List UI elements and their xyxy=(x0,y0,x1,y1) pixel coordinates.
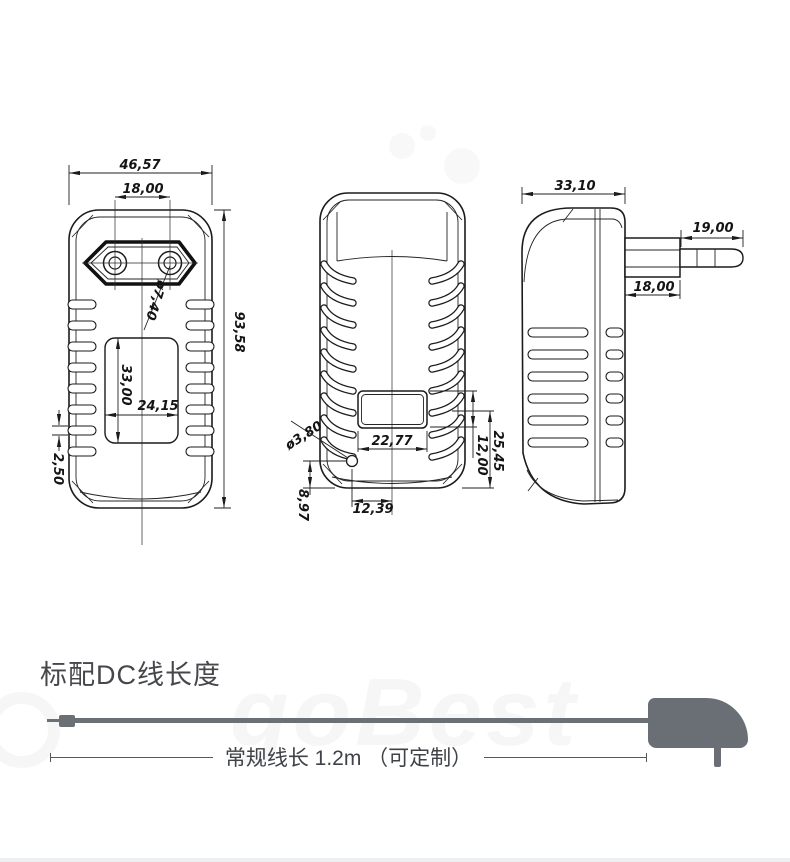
vent-slot xyxy=(432,374,461,391)
vent-slot xyxy=(186,363,214,372)
vent-slot xyxy=(186,321,214,330)
vent-slot xyxy=(68,342,96,351)
cable-length-note: 常规线长 1.2m （可定制） xyxy=(213,742,484,772)
vent-slot xyxy=(68,363,96,372)
vent-slot xyxy=(432,418,461,435)
vent-slot xyxy=(186,447,214,456)
vent-slot xyxy=(68,447,96,456)
vent-slot xyxy=(528,372,588,381)
vent-slot xyxy=(606,394,623,403)
vent-slot xyxy=(324,352,353,369)
dim-front-width: 46,57 xyxy=(118,158,161,173)
cable-section-heading: 标配DC线长度 xyxy=(40,653,221,692)
watermark xyxy=(389,125,480,184)
vent-slot xyxy=(528,438,588,447)
dimension-line-left xyxy=(51,757,213,758)
vent-slot xyxy=(606,438,623,447)
bottom-band xyxy=(80,492,201,499)
vent-slot xyxy=(324,308,353,325)
vent-slot xyxy=(186,384,214,393)
vent-slot xyxy=(324,440,353,457)
dim-led-offset: 12,39 xyxy=(352,502,393,517)
vent-slot xyxy=(432,330,461,347)
vent-slot xyxy=(606,416,623,425)
dim-window-bottom: 25,45 xyxy=(490,430,505,471)
vent-slot xyxy=(432,352,461,369)
vent-slot xyxy=(606,350,623,359)
vent-slot xyxy=(606,372,623,381)
vent-slot xyxy=(324,330,353,347)
dim-label-width: 24,15 xyxy=(137,399,178,414)
dim-label-height: 33,00 xyxy=(118,364,133,405)
vent-slot xyxy=(68,300,96,309)
cable-length-dimension: 常规线长 1.2m （可定制） xyxy=(50,742,647,772)
vent-slot xyxy=(432,264,461,281)
vent-slot xyxy=(432,308,461,325)
vent-slot xyxy=(186,342,214,351)
dim-window-height: 12,00 xyxy=(474,434,489,475)
vent-slot xyxy=(324,418,353,435)
rating-window xyxy=(358,391,427,428)
vent-slot xyxy=(186,405,214,414)
dim-front-height: 93,58 xyxy=(231,311,246,352)
vent-slot xyxy=(528,394,588,403)
dim-depth: 33,10 xyxy=(554,179,595,194)
dc-cable xyxy=(73,718,651,723)
vent-slot xyxy=(324,396,353,413)
vent-slot xyxy=(186,300,214,309)
label-window xyxy=(105,338,178,443)
adapter-pin-silhouette xyxy=(714,747,721,767)
dimension-tick-right xyxy=(646,753,647,762)
side-vent-grille-wide xyxy=(528,328,588,447)
vent-slot xyxy=(606,328,623,337)
vent-slot xyxy=(528,350,588,359)
vent-slot xyxy=(432,286,461,303)
vent-slot xyxy=(68,321,96,330)
curved-vent-grille-right xyxy=(432,264,461,457)
side-view: 33,10 19,00 18,00 xyxy=(522,179,743,504)
vent-slot xyxy=(528,328,588,337)
vent-slot xyxy=(324,374,353,391)
dim-window-width: 22,77 xyxy=(371,434,413,449)
vent-slot xyxy=(68,426,96,435)
curved-vent-grille-left xyxy=(324,264,353,457)
vent-slot xyxy=(186,426,214,435)
dimension-line-right xyxy=(484,757,646,758)
dim-plug-base: 18,00 xyxy=(633,280,674,295)
plug-base xyxy=(625,238,680,277)
adapter-body-silhouette xyxy=(648,698,748,748)
adapter-spec-image: 46,57 18,00 93,58 ø7,40 33,00 24,15 2,50 xyxy=(0,0,790,862)
vent-slot xyxy=(432,440,461,457)
vent-slot xyxy=(432,396,461,413)
front-view: 46,57 18,00 93,58 ø7,40 33,00 24,15 2,50 xyxy=(50,158,246,545)
back-view: 22,77 12,39 ø3,80 8,97 12,00 25,45 xyxy=(282,193,505,522)
side-vent-grille-narrow xyxy=(606,328,623,447)
vent-slot xyxy=(68,384,96,393)
led-hole xyxy=(347,456,358,467)
dim-led-diameter: ø3,80 xyxy=(282,419,325,454)
vent-slot xyxy=(528,416,588,425)
dim-pin-spacing: 18,00 xyxy=(122,182,163,197)
dim-led-bottom: 8,97 xyxy=(295,489,310,522)
vent-slot xyxy=(324,286,353,303)
dim-pin-length: 19,00 xyxy=(692,221,733,236)
dim-vent-height: 2,50 xyxy=(50,453,65,485)
vent-slot xyxy=(68,405,96,414)
page-edge-strip xyxy=(0,858,790,862)
shell-seam xyxy=(595,209,600,502)
technical-drawing: 46,57 18,00 93,58 ø7,40 33,00 24,15 2,50 xyxy=(0,0,790,640)
vent-grille-right xyxy=(186,300,214,456)
vent-grille-left xyxy=(68,300,96,456)
plug-pin xyxy=(680,249,743,267)
vent-slot xyxy=(324,264,353,281)
